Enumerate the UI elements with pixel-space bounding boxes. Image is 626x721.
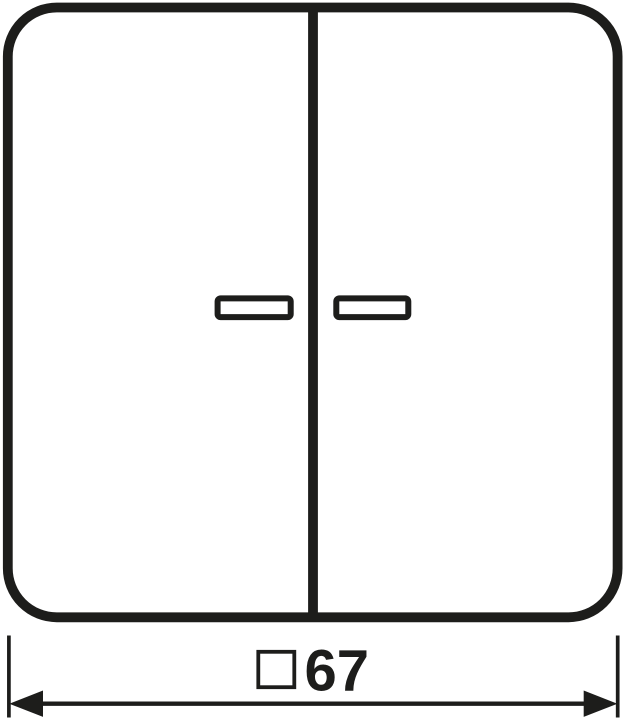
svg-text:67: 67 [305, 638, 370, 703]
